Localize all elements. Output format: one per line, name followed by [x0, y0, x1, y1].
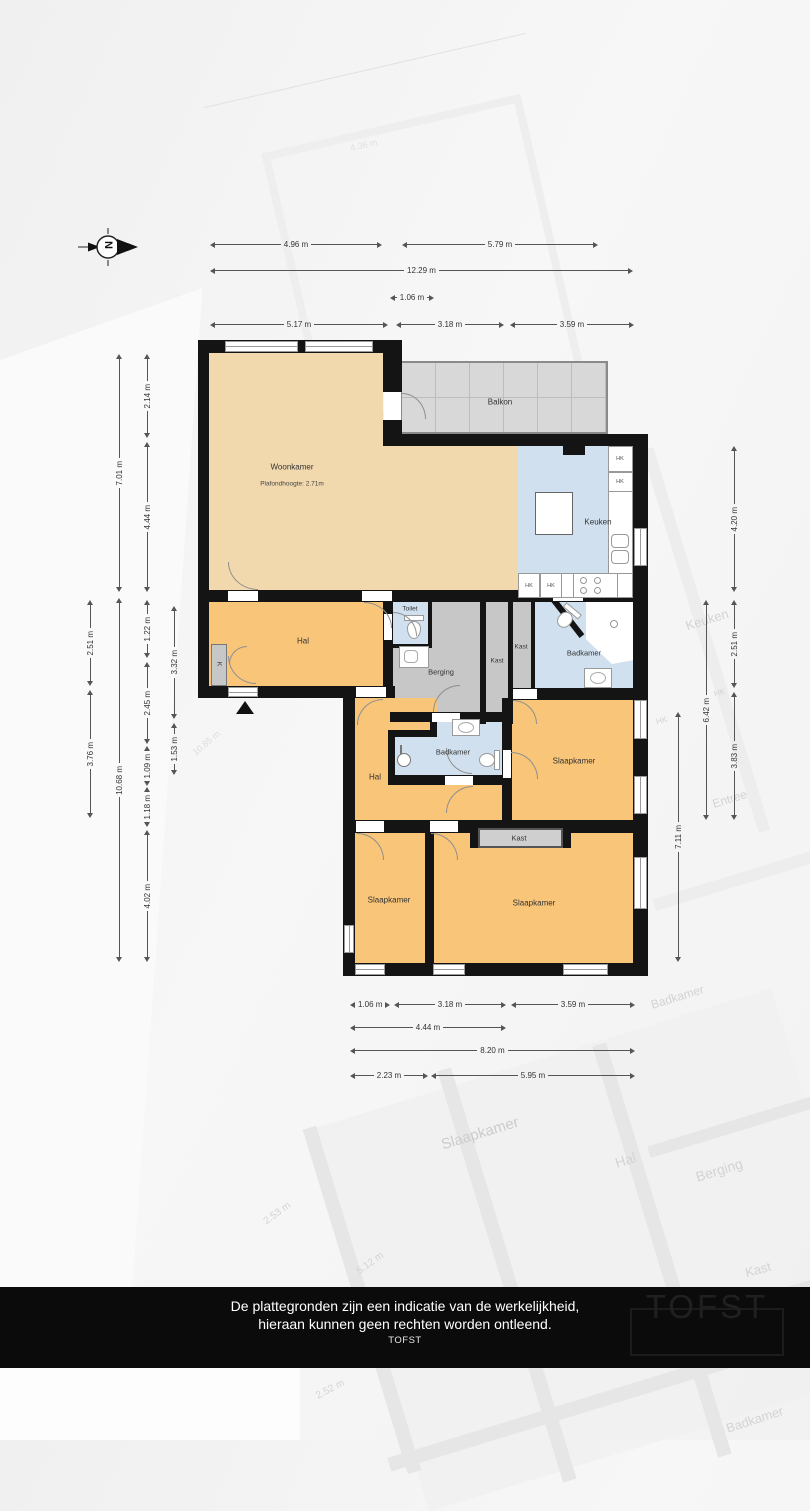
compass-letter: N: [102, 238, 114, 252]
compass-rose: N: [78, 226, 138, 268]
washer-icon: [397, 753, 411, 767]
room-sublabel-plafondhoogte: Plafondhoogte: 2.71m: [260, 481, 324, 488]
entrance-door-threshold: [228, 687, 258, 697]
dimension-bottom: 2.23 m: [350, 1071, 428, 1080]
room-label-keuken: Keuken: [584, 518, 611, 527]
room-label-slaapkamer-1: Slaapkamer: [553, 757, 596, 766]
window: [225, 341, 298, 352]
dimension-bottom: 4.44 m: [350, 1023, 506, 1032]
door-opening: [362, 591, 392, 601]
window: [355, 964, 385, 975]
cabinet-label-hk: HK: [616, 456, 624, 462]
dimension-left: 3.76 m: [83, 690, 97, 818]
room-label-kast-2: Kast: [514, 644, 527, 651]
room-label-badkamer-1: Badkamer: [567, 649, 601, 658]
footer-lower-white: [0, 1368, 300, 1440]
dimension-bottom: 3.18 m: [394, 1000, 506, 1009]
wall: [531, 602, 535, 688]
dimension-top: 3.18 m: [396, 320, 504, 329]
window: [634, 857, 647, 909]
dimension-top: 5.79 m: [402, 240, 598, 249]
cabinet-label-hk: HK: [616, 479, 624, 485]
kitchen-sink: [611, 550, 629, 564]
dimension-bottom: 1.06 m: [350, 1000, 390, 1009]
dimension-left: 4.02 m: [140, 830, 154, 962]
room-label-hal-boven: Hal: [297, 637, 309, 646]
dimension-right: 6.42 m: [699, 600, 713, 820]
door-opening: [384, 392, 401, 420]
watermark-dim: 2.52 m: [314, 1377, 346, 1401]
dimension-left: 1.53 m: [167, 723, 181, 775]
dimension-right: 3.83 m: [727, 692, 741, 820]
tofst-logo: TOFST: [627, 1290, 789, 1362]
watermark-dim: 10.85 m: [191, 729, 222, 758]
bath-drain-icon: [610, 620, 618, 628]
dimension-bottom: 3.59 m: [511, 1000, 635, 1009]
dimension-left: 10.68 m: [112, 598, 126, 962]
dimension-left: 2.45 m: [140, 662, 154, 744]
dimension-bottom: 5.95 m: [431, 1071, 635, 1080]
wall: [383, 340, 402, 392]
dimension-right: 2.51 m: [727, 600, 741, 688]
cabinet-label-hk: HK: [547, 583, 555, 589]
window: [433, 964, 465, 975]
dimension-top: 12.29 m: [210, 266, 633, 275]
door-opening: [356, 687, 386, 697]
toilet-bowl: [479, 753, 495, 767]
dimension-top: 3.59 m: [510, 320, 634, 329]
wall: [393, 434, 648, 446]
door-opening: [228, 591, 258, 601]
room-label-kast-3: Kast: [511, 834, 526, 843]
room-woonkamer-ext: [383, 446, 518, 590]
burner-icon: [594, 577, 601, 584]
window: [344, 925, 354, 953]
wall: [563, 434, 585, 455]
watermark-label: HK: [655, 715, 668, 727]
dimension-left: 2.51 m: [83, 600, 97, 686]
dimension-right: 7.11 m: [671, 712, 685, 962]
dimension-left: 3.32 m: [167, 606, 181, 719]
basin-icon: [458, 722, 474, 733]
room-label-berging: Berging: [428, 668, 454, 677]
burner-icon: [580, 587, 587, 594]
wall: [563, 820, 571, 848]
window: [634, 776, 647, 814]
room-label-slaapkamer-3: Slaapkamer: [513, 899, 556, 908]
wall: [480, 602, 486, 724]
room-label-k: K: [216, 662, 223, 666]
watermark-dim-line: [204, 33, 526, 108]
tap-icon: [400, 745, 402, 754]
wall: [470, 820, 478, 848]
door-opening: [513, 689, 537, 699]
dimension-left: 2.14 m: [140, 354, 154, 438]
dimension-left: 1.22 m: [140, 600, 154, 658]
burner-icon: [594, 587, 601, 594]
dimension-left: 1.09 m: [140, 746, 154, 784]
dimension-top: 1.06 m: [390, 293, 434, 302]
door-opening: [503, 750, 511, 778]
cabinet-label-hk: HK: [525, 583, 533, 589]
room-label-slaapkamer-2: Slaapkamer: [368, 896, 411, 905]
room-label-kast-1: Kast: [490, 658, 503, 665]
dimension-top: 4.96 m: [210, 240, 382, 249]
wall: [388, 730, 395, 775]
dimension-left: 4.44 m: [140, 442, 154, 592]
logo-text: TOFST: [627, 1288, 787, 1326]
room-label-balkon: Balkon: [488, 398, 512, 407]
window: [305, 341, 373, 352]
dimension-top: 5.17 m: [210, 320, 388, 329]
dimension-left: 7.01 m: [112, 354, 126, 592]
room-label-woonkamer: Woonkamer: [271, 463, 314, 472]
basin-icon: [590, 672, 606, 684]
door-opening: [356, 821, 384, 832]
room-label-toilet: Toilet: [402, 606, 417, 613]
watermark-dim: 2.53 m: [262, 1200, 293, 1227]
kitchen-island: [535, 492, 573, 535]
basin-icon: [404, 650, 418, 663]
window: [634, 528, 647, 566]
dimension-left: 1.18 m: [140, 787, 154, 827]
dimension-right: 4.20 m: [727, 446, 741, 592]
dimension-bottom: 8.20 m: [350, 1046, 635, 1055]
watermark-label: Badkamer: [649, 982, 705, 1011]
burner-icon: [580, 577, 587, 584]
kitchen-sink: [611, 534, 629, 548]
room-label-hal-onder: Hal: [369, 773, 381, 782]
door-opening: [445, 776, 473, 785]
entrance-arrow: [236, 701, 254, 714]
wall: [388, 730, 437, 737]
window: [563, 964, 608, 975]
wall: [198, 340, 209, 698]
window: [634, 700, 647, 739]
door-opening: [430, 821, 458, 832]
room-label-badkamer-2: Badkamer: [436, 748, 470, 757]
